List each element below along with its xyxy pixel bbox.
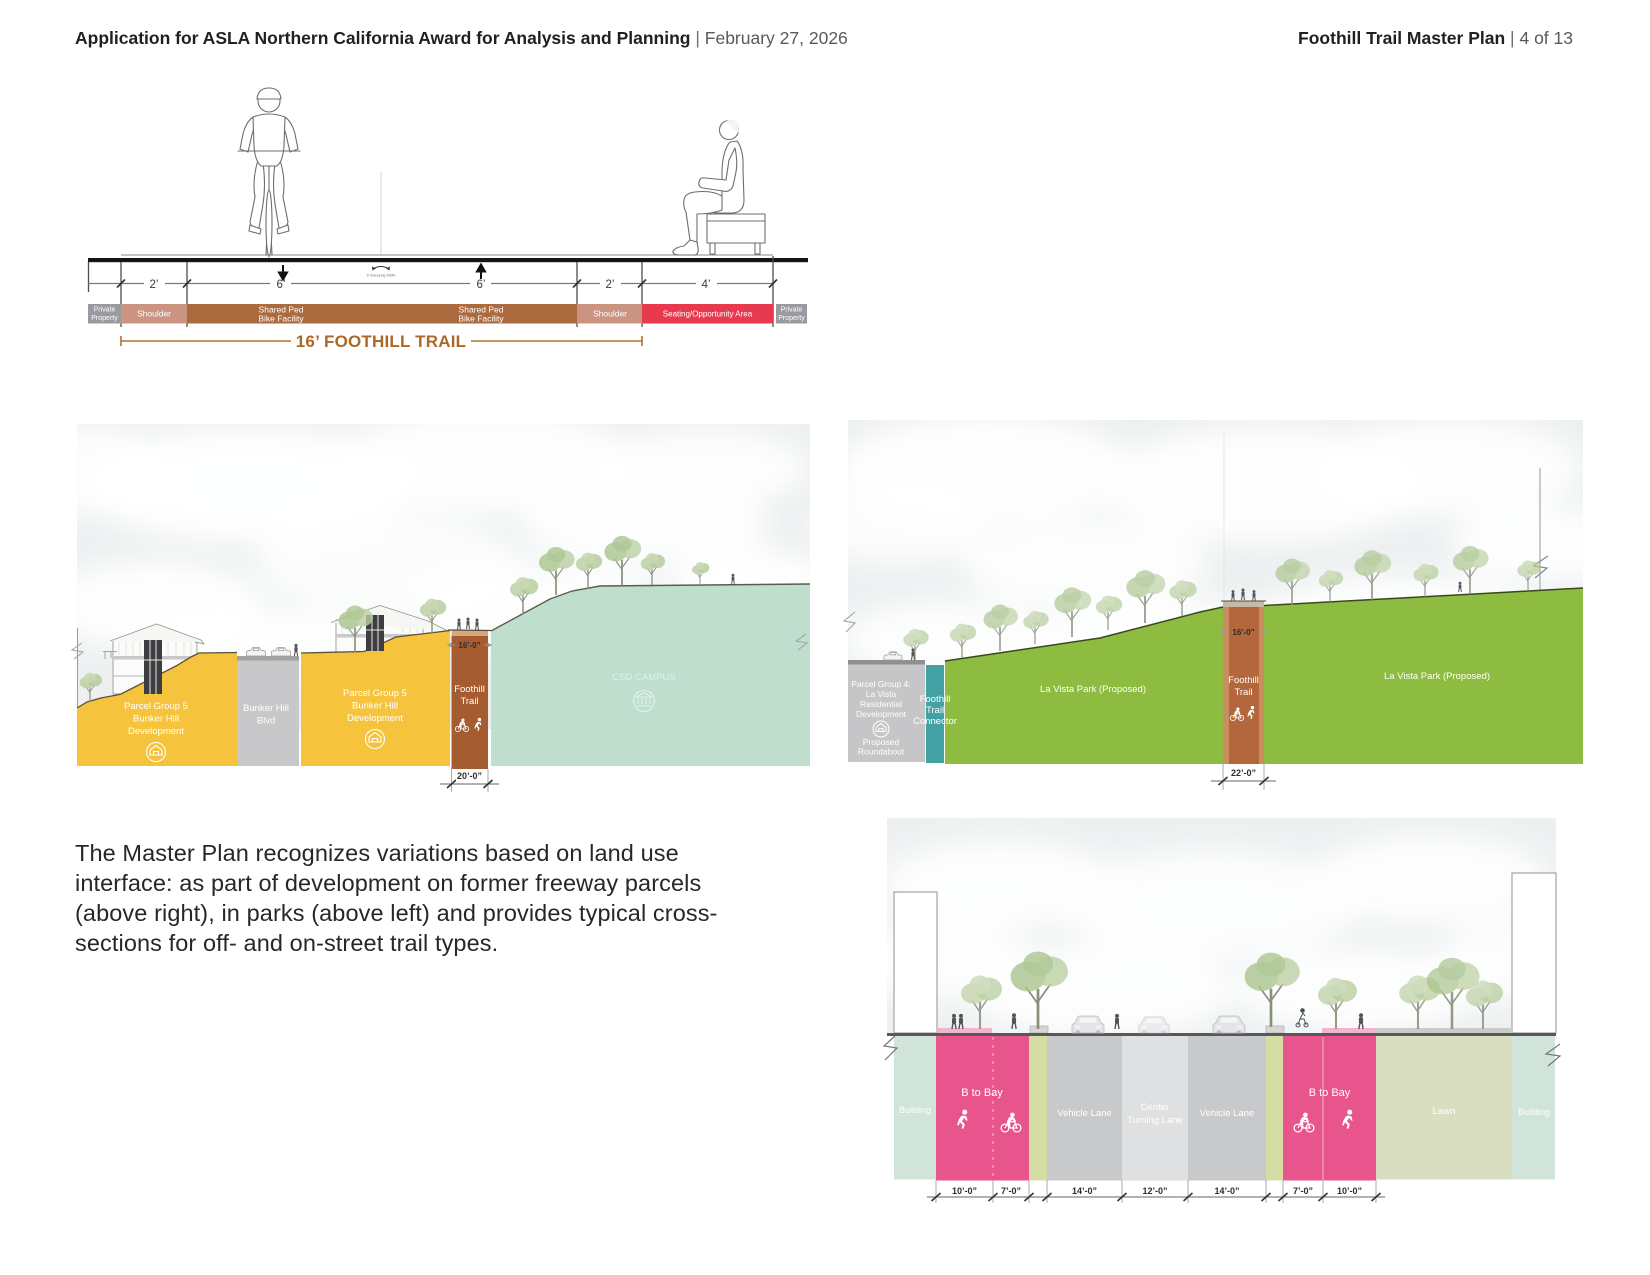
svg-text:6’: 6’ (477, 279, 486, 291)
svg-text:B to Bay: B to Bay (1309, 1087, 1351, 1099)
svg-text:16’ FOOTHILL TRAIL: 16’ FOOTHILL TRAIL (296, 332, 466, 351)
svg-text:Bike Facility: Bike Facility (458, 314, 504, 324)
svg-text:Building: Building (899, 1105, 931, 1115)
svg-text:Private: Private (94, 307, 116, 314)
svg-text:4’: 4’ (702, 279, 711, 291)
svg-text:20’-0”: 20’-0” (457, 771, 482, 781)
svg-text:14’-0”: 14’-0” (1072, 1186, 1097, 1196)
svg-text:Property: Property (778, 315, 805, 322)
svg-text:Foothill: Foothill (920, 694, 951, 705)
svg-text:Trail: Trail (460, 696, 478, 707)
svg-text:Building: Building (1518, 1107, 1550, 1117)
svg-text:Lawn: Lawn (1433, 1106, 1456, 1117)
svg-text:Development: Development (347, 713, 403, 724)
svg-text:Vehicle Lane: Vehicle Lane (1200, 1108, 1254, 1119)
svg-text:7’-0”: 7’-0” (1001, 1186, 1021, 1196)
svg-text:6’: 6’ (277, 279, 286, 291)
svg-text:La Vista: La Vista (866, 689, 897, 699)
svg-text:10’-0”: 10’-0” (1337, 1186, 1362, 1196)
svg-text:7’-0”: 7’-0” (1293, 1186, 1313, 1196)
svg-text:B to Bay: B to Bay (961, 1087, 1003, 1099)
svg-text:Bunker Hill: Bunker Hill (352, 701, 398, 712)
svg-text:Seating/Opportunity Area: Seating/Opportunity Area (663, 310, 753, 319)
svg-text:Parcel Group 4:: Parcel Group 4: (851, 679, 911, 689)
svg-text:Foothill: Foothill (454, 684, 485, 695)
svg-text:Property: Property (91, 315, 118, 322)
svg-text:La Vista Park (Proposed): La Vista Park (Proposed) (1384, 671, 1490, 682)
svg-text:Parcel Group 5: Parcel Group 5 (124, 701, 188, 712)
svg-text:Center: Center (1141, 1102, 1170, 1113)
svg-text:5’ Sweeping Width: 5’ Sweeping Width (367, 274, 396, 278)
svg-text:Connector: Connector (913, 716, 957, 727)
svg-text:Private: Private (781, 307, 803, 314)
svg-text:Turning Lane: Turning Lane (1127, 1115, 1183, 1126)
svg-text:Shoulder: Shoulder (137, 309, 171, 319)
svg-text:Blvd: Blvd (257, 716, 275, 727)
svg-text:12’-0”: 12’-0” (1142, 1186, 1167, 1196)
svg-text:Bike Facility: Bike Facility (258, 314, 304, 324)
svg-text:14’-0”: 14’-0” (1214, 1186, 1239, 1196)
svg-text:Foothill: Foothill (1228, 675, 1259, 686)
svg-text:Trail: Trail (926, 705, 944, 716)
svg-text:Development: Development (128, 726, 184, 737)
svg-text:Proposed: Proposed (863, 737, 900, 747)
svg-text:CSD CAMPUS: CSD CAMPUS (612, 672, 675, 683)
svg-text:Bunker Hill: Bunker Hill (133, 714, 179, 725)
svg-text:Bunker Hill: Bunker Hill (243, 703, 289, 714)
svg-text:16’-0”: 16’-0” (458, 641, 480, 650)
svg-text:Roundabout: Roundabout (858, 747, 905, 757)
svg-text:Residential: Residential (860, 699, 902, 709)
svg-text:Parcel Group 5: Parcel Group 5 (343, 688, 407, 699)
svg-text:10’-0”: 10’-0” (952, 1186, 977, 1196)
svg-text:22’-0”: 22’-0” (1231, 768, 1256, 778)
svg-text:2’: 2’ (606, 279, 615, 291)
svg-text:16’-0”: 16’-0” (1232, 628, 1254, 637)
svg-text:2’: 2’ (150, 279, 159, 291)
svg-text:Shoulder: Shoulder (593, 309, 627, 319)
svg-text:Vehicle Lane: Vehicle Lane (1057, 1108, 1111, 1119)
svg-text:Development: Development (856, 709, 907, 719)
svg-text:La Vista Park (Proposed): La Vista Park (Proposed) (1040, 684, 1146, 695)
svg-text:Trail: Trail (1234, 687, 1252, 698)
